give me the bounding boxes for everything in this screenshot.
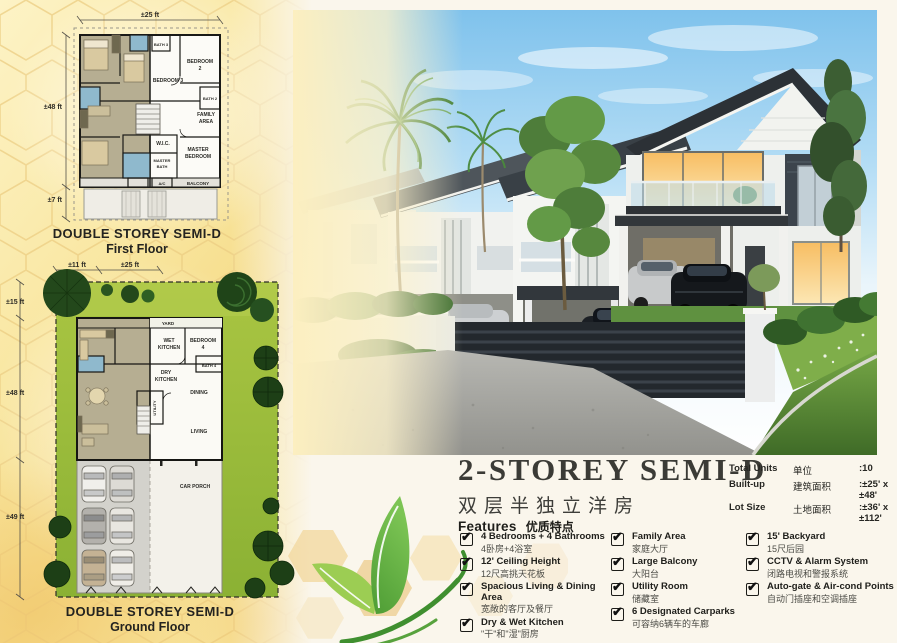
house-render-photo [293, 10, 877, 455]
spec-label-built-up: Built-up [729, 479, 789, 501]
page-title: 2-STOREY SEMI-D [458, 452, 767, 488]
features-column-3: ✔ 15' Backyard15尺后园 ✔ CCTV & Alarm Syste… [746, 532, 896, 607]
check-icon: ✔ [612, 579, 623, 595]
spec-label-lot-size-zh: 土地面积 [793, 502, 855, 524]
room-label-bath2: BATH 2 [203, 96, 218, 101]
ground-floor-caption-sub: Ground Floor [0, 620, 300, 634]
feature-large-balcony: ✔ Large Balcony大阳台 [611, 557, 746, 579]
room-label-wet-kitchen-l2: KITCHEN [158, 345, 181, 351]
feature-utility-room: ✔ Utility Room储藏室 [611, 582, 746, 604]
feature-text-en: 4 Bedrooms + 4 Bathrooms [481, 532, 605, 543]
check-icon: ✔ [461, 579, 472, 595]
room-label-living: LIVING [191, 429, 208, 435]
checkbox: ✔ [460, 558, 473, 571]
feature-text-en: CCTV & Alarm System [767, 557, 868, 568]
gf-dim-top-left: ±11 ft [68, 262, 87, 269]
feature-text-en: Dry & Wet Kitchen [481, 618, 564, 629]
gf-dim-top: ±25 ft [121, 262, 140, 269]
room-label-dry-kitchen-l1: DRY [161, 370, 172, 376]
room-label-bedroom2-l1: BEDROOM [187, 59, 213, 65]
room-label-bedroom4-l1: BEDROOM [190, 338, 216, 344]
first-floor-plan: ±25 ft ±48 ft ±7 ft [22, 6, 252, 224]
room-label-family-l2: AREA [199, 119, 214, 125]
check-icon: ✔ [747, 554, 758, 570]
first-floor-caption: DOUBLE STOREY SEMI-D First Floor [22, 226, 252, 256]
checkbox: ✔ [460, 533, 473, 546]
feature-text-zh: "干"和"湿"厨房 [481, 629, 564, 639]
room-label-master-bath-l2: BATH [157, 164, 168, 169]
feature-text-en: Utility Room [632, 582, 688, 593]
checkbox: ✔ [746, 583, 759, 596]
checkbox: ✔ [460, 619, 473, 632]
room-label-master-bedroom-l1: MASTER [187, 147, 209, 153]
check-icon: ✔ [612, 604, 623, 620]
ff-stairs [136, 104, 160, 134]
gf-dim-left2: ±48 ft [6, 390, 25, 397]
room-label-bedroom4-l2: 4 [202, 345, 205, 351]
check-icon: ✔ [747, 579, 758, 595]
ground-floor-caption: DOUBLE STOREY SEMI-D Ground Floor [0, 604, 300, 634]
ground-floor-caption-title: DOUBLE STOREY SEMI-D [0, 604, 300, 619]
feature-text-en: Family Area [632, 532, 686, 543]
room-label-yard: YARD [162, 321, 175, 326]
feature-bedrooms: ✔ 4 Bedrooms + 4 Bathrooms4卧房+4浴室 [460, 532, 610, 554]
first-floor-caption-sub: First Floor [22, 242, 252, 256]
room-label-bath3: BATH 3 [154, 42, 169, 47]
feature-text-zh: 自动门插座和空调插座 [767, 594, 894, 604]
ff-dim-bottom: ±7 ft [48, 197, 63, 204]
room-label-family-l1: FAMILY [197, 112, 216, 118]
spec-table: Total Units 单位 :10 Built-up 建筑面积 :±25' x… [729, 463, 897, 524]
feature-dry-wet-kitchen: ✔ Dry & Wet Kitchen"干"和"湿"厨房 [460, 618, 610, 640]
feature-text-zh: 15尺后园 [767, 544, 825, 554]
feature-autogate-aircond: ✔ Auto-gate & Air-cond Points自动门插座和空调插座 [746, 582, 896, 604]
room-label-bedroom3: BEDROOM 3 [153, 78, 184, 84]
room-label-dry-kitchen-l2: KITCHEN [155, 377, 178, 383]
room-label-master-bath-l1: MASTER [154, 158, 171, 163]
features-column-1: ✔ 4 Bedrooms + 4 Bathrooms4卧房+4浴室 ✔ 12' … [460, 532, 610, 643]
first-floor-caption-title: DOUBLE STOREY SEMI-D [22, 226, 252, 241]
feature-text-zh: 12尺高挑天花板 [481, 569, 560, 579]
ff-dim-left: ±48 ft [44, 104, 63, 111]
feature-text-en: 6 Designated Carparks [632, 607, 735, 618]
ff-dim-top: ±25 ft [141, 12, 160, 19]
checkbox: ✔ [611, 558, 624, 571]
check-icon: ✔ [612, 529, 623, 545]
feature-text-zh: 储藏室 [632, 594, 688, 604]
spec-label-lot-size: Lot Size [729, 502, 789, 524]
checkbox: ✔ [611, 533, 624, 546]
check-icon: ✔ [461, 529, 472, 545]
feature-text-en: 15' Backyard [767, 532, 825, 543]
feature-ceiling-height: ✔ 12' Ceiling Height12尺高挑天花板 [460, 557, 610, 579]
feature-backyard: ✔ 15' Backyard15尺后园 [746, 532, 896, 554]
title-block: 2-STOREY SEMI-D 双层半独立洋房 [458, 452, 767, 518]
room-label-wic: W.I.C. [156, 141, 170, 147]
photo-left-fade [293, 10, 463, 455]
feature-text-zh: 可容纳6辆车的车廊 [632, 619, 735, 629]
room-label-bath4: BATH 4 [202, 363, 217, 368]
feature-carparks: ✔ 6 Designated Carparks可容纳6辆车的车廊 [611, 607, 746, 629]
checkbox: ✔ [460, 583, 473, 596]
room-label-wet-kitchen-l1: WET [163, 338, 174, 344]
room-label-car-porch: CAR PORCH [180, 484, 211, 490]
feature-text-en: Large Balcony [632, 557, 697, 568]
feature-text-en: 12' Ceiling Height [481, 557, 560, 568]
gf-dim-left3: ±49 ft [6, 514, 25, 521]
feature-text-zh: 闭路电视和警报系统 [767, 569, 868, 579]
feature-family-area: ✔ Family Area家庭大厅 [611, 532, 746, 554]
spec-label-total-units-zh: 单位 [793, 463, 855, 477]
feature-text-zh: 家庭大厅 [632, 544, 686, 554]
ff-porch-roof [84, 189, 217, 219]
gf-dim-left1: ±15 ft [6, 299, 25, 306]
check-icon: ✔ [612, 554, 623, 570]
feature-text-en: Auto-gate & Air-cond Points [767, 582, 894, 593]
page-title-chinese: 双层半独立洋房 [458, 491, 767, 518]
room-label-utility: UTILITY [152, 400, 157, 415]
room-label-bedroom2-l2: 2 [199, 66, 202, 72]
feature-cctv-alarm: ✔ CCTV & Alarm System闭路电视和警报系统 [746, 557, 896, 579]
check-icon: ✔ [461, 554, 472, 570]
room-label-dining: DINING [190, 390, 208, 396]
spec-value-built-up: :±25' x ±48' [859, 479, 897, 501]
checkbox: ✔ [746, 533, 759, 546]
feature-text-en: Spacious Living & Dining Area [481, 582, 610, 603]
spec-value-lot-size: :±36' x ±112' [859, 502, 897, 524]
feature-text-zh: 大阳台 [632, 569, 697, 579]
gf-stairs [137, 406, 150, 434]
feature-text-zh: 4卧房+4浴室 [481, 544, 605, 554]
features-column-2: ✔ Family Area家庭大厅 ✔ Large Balcony大阳台 ✔ U… [611, 532, 746, 632]
check-icon: ✔ [747, 529, 758, 545]
room-label-master-bedroom-l2: BEDROOM [185, 154, 211, 160]
checkbox: ✔ [746, 558, 759, 571]
checkbox: ✔ [611, 608, 624, 621]
room-label-balcony: BALCONY [187, 181, 209, 186]
room-label-ac: A/C [159, 181, 166, 186]
spec-label-built-up-zh: 建筑面积 [793, 479, 855, 501]
feature-text-zh: 宽敞的客厅及餐厅 [481, 604, 610, 614]
spec-value-total-units: :10 [859, 463, 897, 477]
check-icon: ✔ [461, 615, 472, 631]
checkbox: ✔ [611, 583, 624, 596]
feature-living-dining: ✔ Spacious Living & Dining Area宽敞的客厅及餐厅 [460, 582, 610, 614]
spec-label-total-units: Total Units [729, 463, 789, 477]
